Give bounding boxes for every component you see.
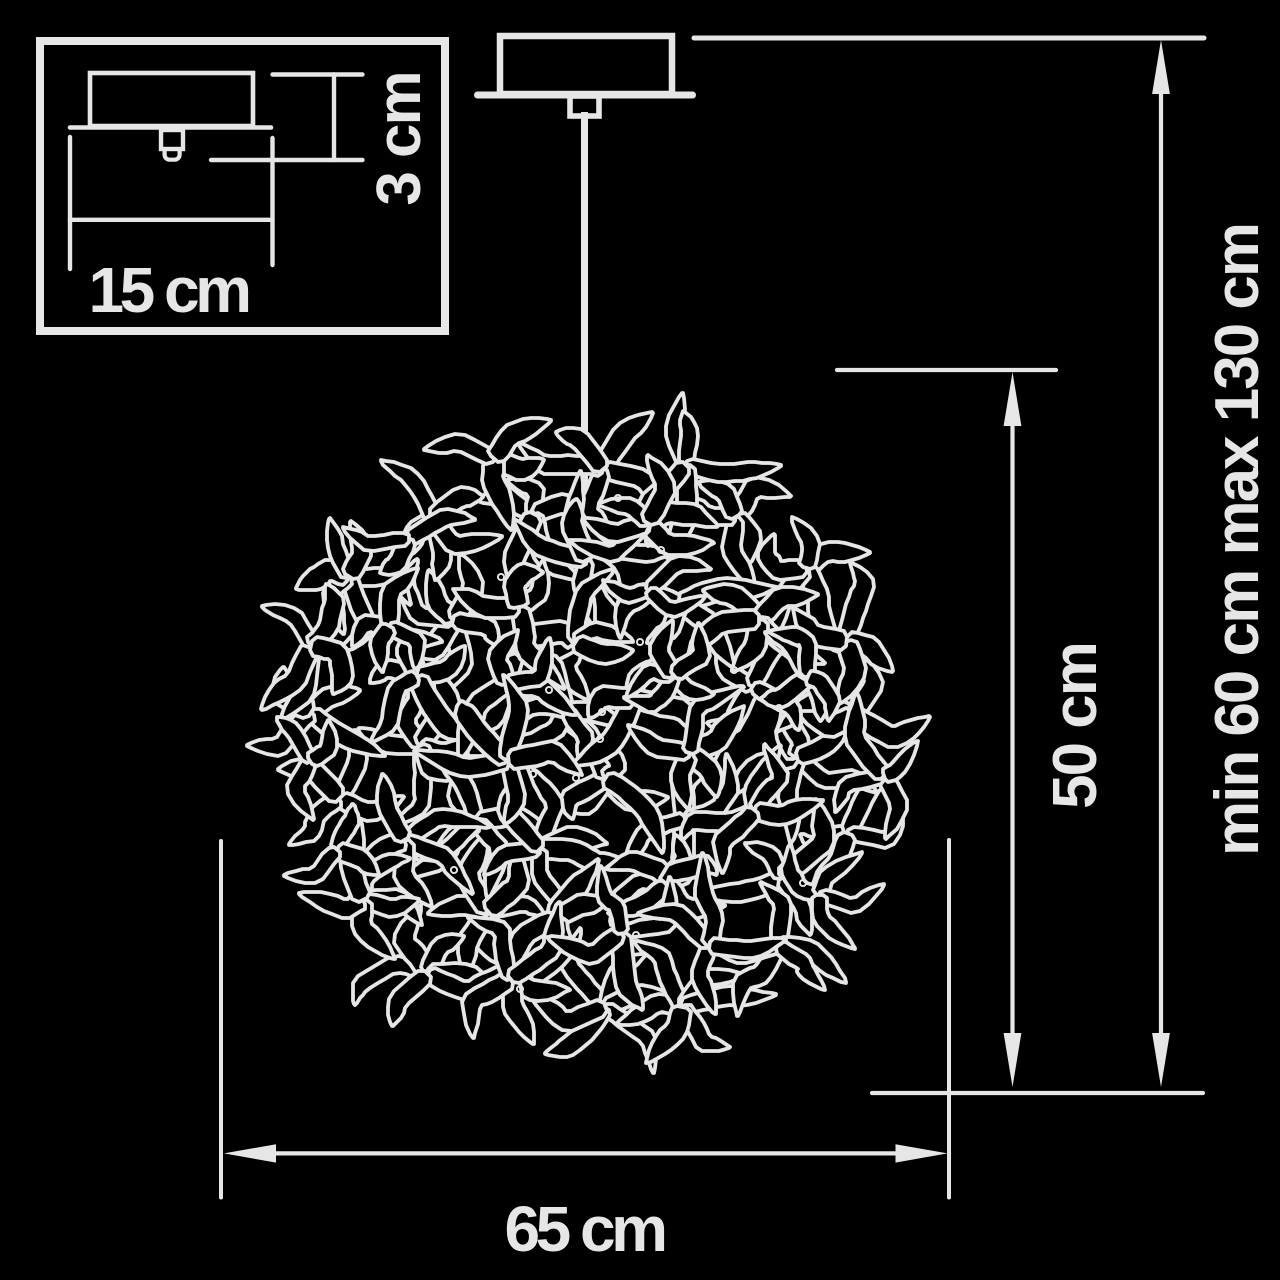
svg-text:65 cm: 65 cm — [505, 1193, 665, 1265]
svg-text:3 cm: 3 cm — [365, 72, 434, 205]
svg-text:15 cm: 15 cm — [89, 254, 249, 326]
svg-text:50 cm: 50 cm — [1041, 643, 1110, 809]
svg-text:min 60 cm max 130 cm: min 60 cm max 130 cm — [1203, 224, 1272, 856]
